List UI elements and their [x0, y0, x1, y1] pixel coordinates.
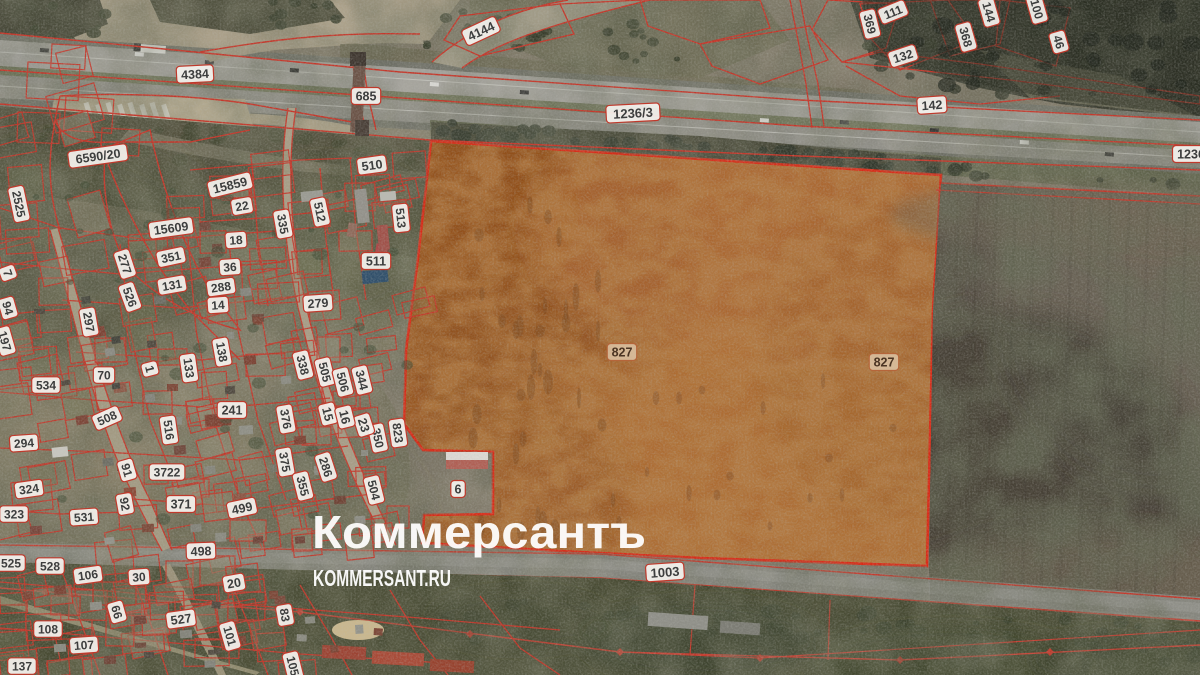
svg-text:528: 528 [40, 559, 60, 573]
svg-text:4384: 4384 [181, 67, 210, 82]
svg-text:83: 83 [277, 607, 293, 623]
svg-text:133: 133 [180, 357, 197, 379]
svg-text:371: 371 [171, 498, 192, 512]
svg-text:Коммерсантъ: Коммерсантъ [312, 506, 646, 558]
svg-text:279: 279 [307, 296, 329, 311]
svg-text:106: 106 [77, 567, 99, 584]
svg-text:323: 323 [4, 507, 24, 521]
svg-text:525: 525 [1, 556, 21, 570]
svg-text:531: 531 [74, 510, 95, 525]
svg-text:20: 20 [226, 575, 242, 591]
svg-text:513: 513 [393, 207, 409, 229]
svg-text:324: 324 [18, 481, 40, 498]
svg-text:36: 36 [223, 260, 238, 275]
svg-text:294: 294 [14, 436, 35, 451]
svg-text:685: 685 [356, 90, 377, 104]
svg-text:510: 510 [361, 157, 384, 174]
svg-text:1003: 1003 [650, 564, 680, 581]
svg-text:137: 137 [12, 659, 32, 673]
svg-text:1236/3: 1236/3 [613, 105, 653, 122]
svg-text:823: 823 [389, 422, 406, 444]
svg-text:3722: 3722 [154, 465, 181, 479]
svg-text:288: 288 [210, 279, 232, 296]
svg-text:516: 516 [160, 419, 177, 441]
svg-text:30: 30 [132, 570, 147, 585]
svg-text:92: 92 [117, 496, 133, 512]
svg-text:827: 827 [874, 356, 895, 370]
svg-text:498: 498 [190, 544, 211, 559]
svg-text:22: 22 [234, 198, 250, 214]
svg-text:142: 142 [921, 98, 943, 113]
svg-text:14: 14 [211, 298, 226, 313]
svg-text:511: 511 [366, 255, 386, 269]
svg-text:827: 827 [612, 346, 633, 360]
svg-text:6: 6 [455, 483, 462, 497]
svg-text:KOMMERSANT.RU: KOMMERSANT.RU [313, 565, 451, 591]
svg-text:18: 18 [229, 233, 244, 248]
svg-text:70: 70 [97, 368, 111, 382]
svg-text:241: 241 [222, 404, 243, 418]
svg-text:534: 534 [36, 378, 56, 392]
svg-text:527: 527 [170, 611, 193, 628]
svg-text:1236: 1236 [1177, 148, 1200, 162]
svg-text:108: 108 [38, 622, 58, 636]
svg-text:107: 107 [74, 638, 95, 653]
